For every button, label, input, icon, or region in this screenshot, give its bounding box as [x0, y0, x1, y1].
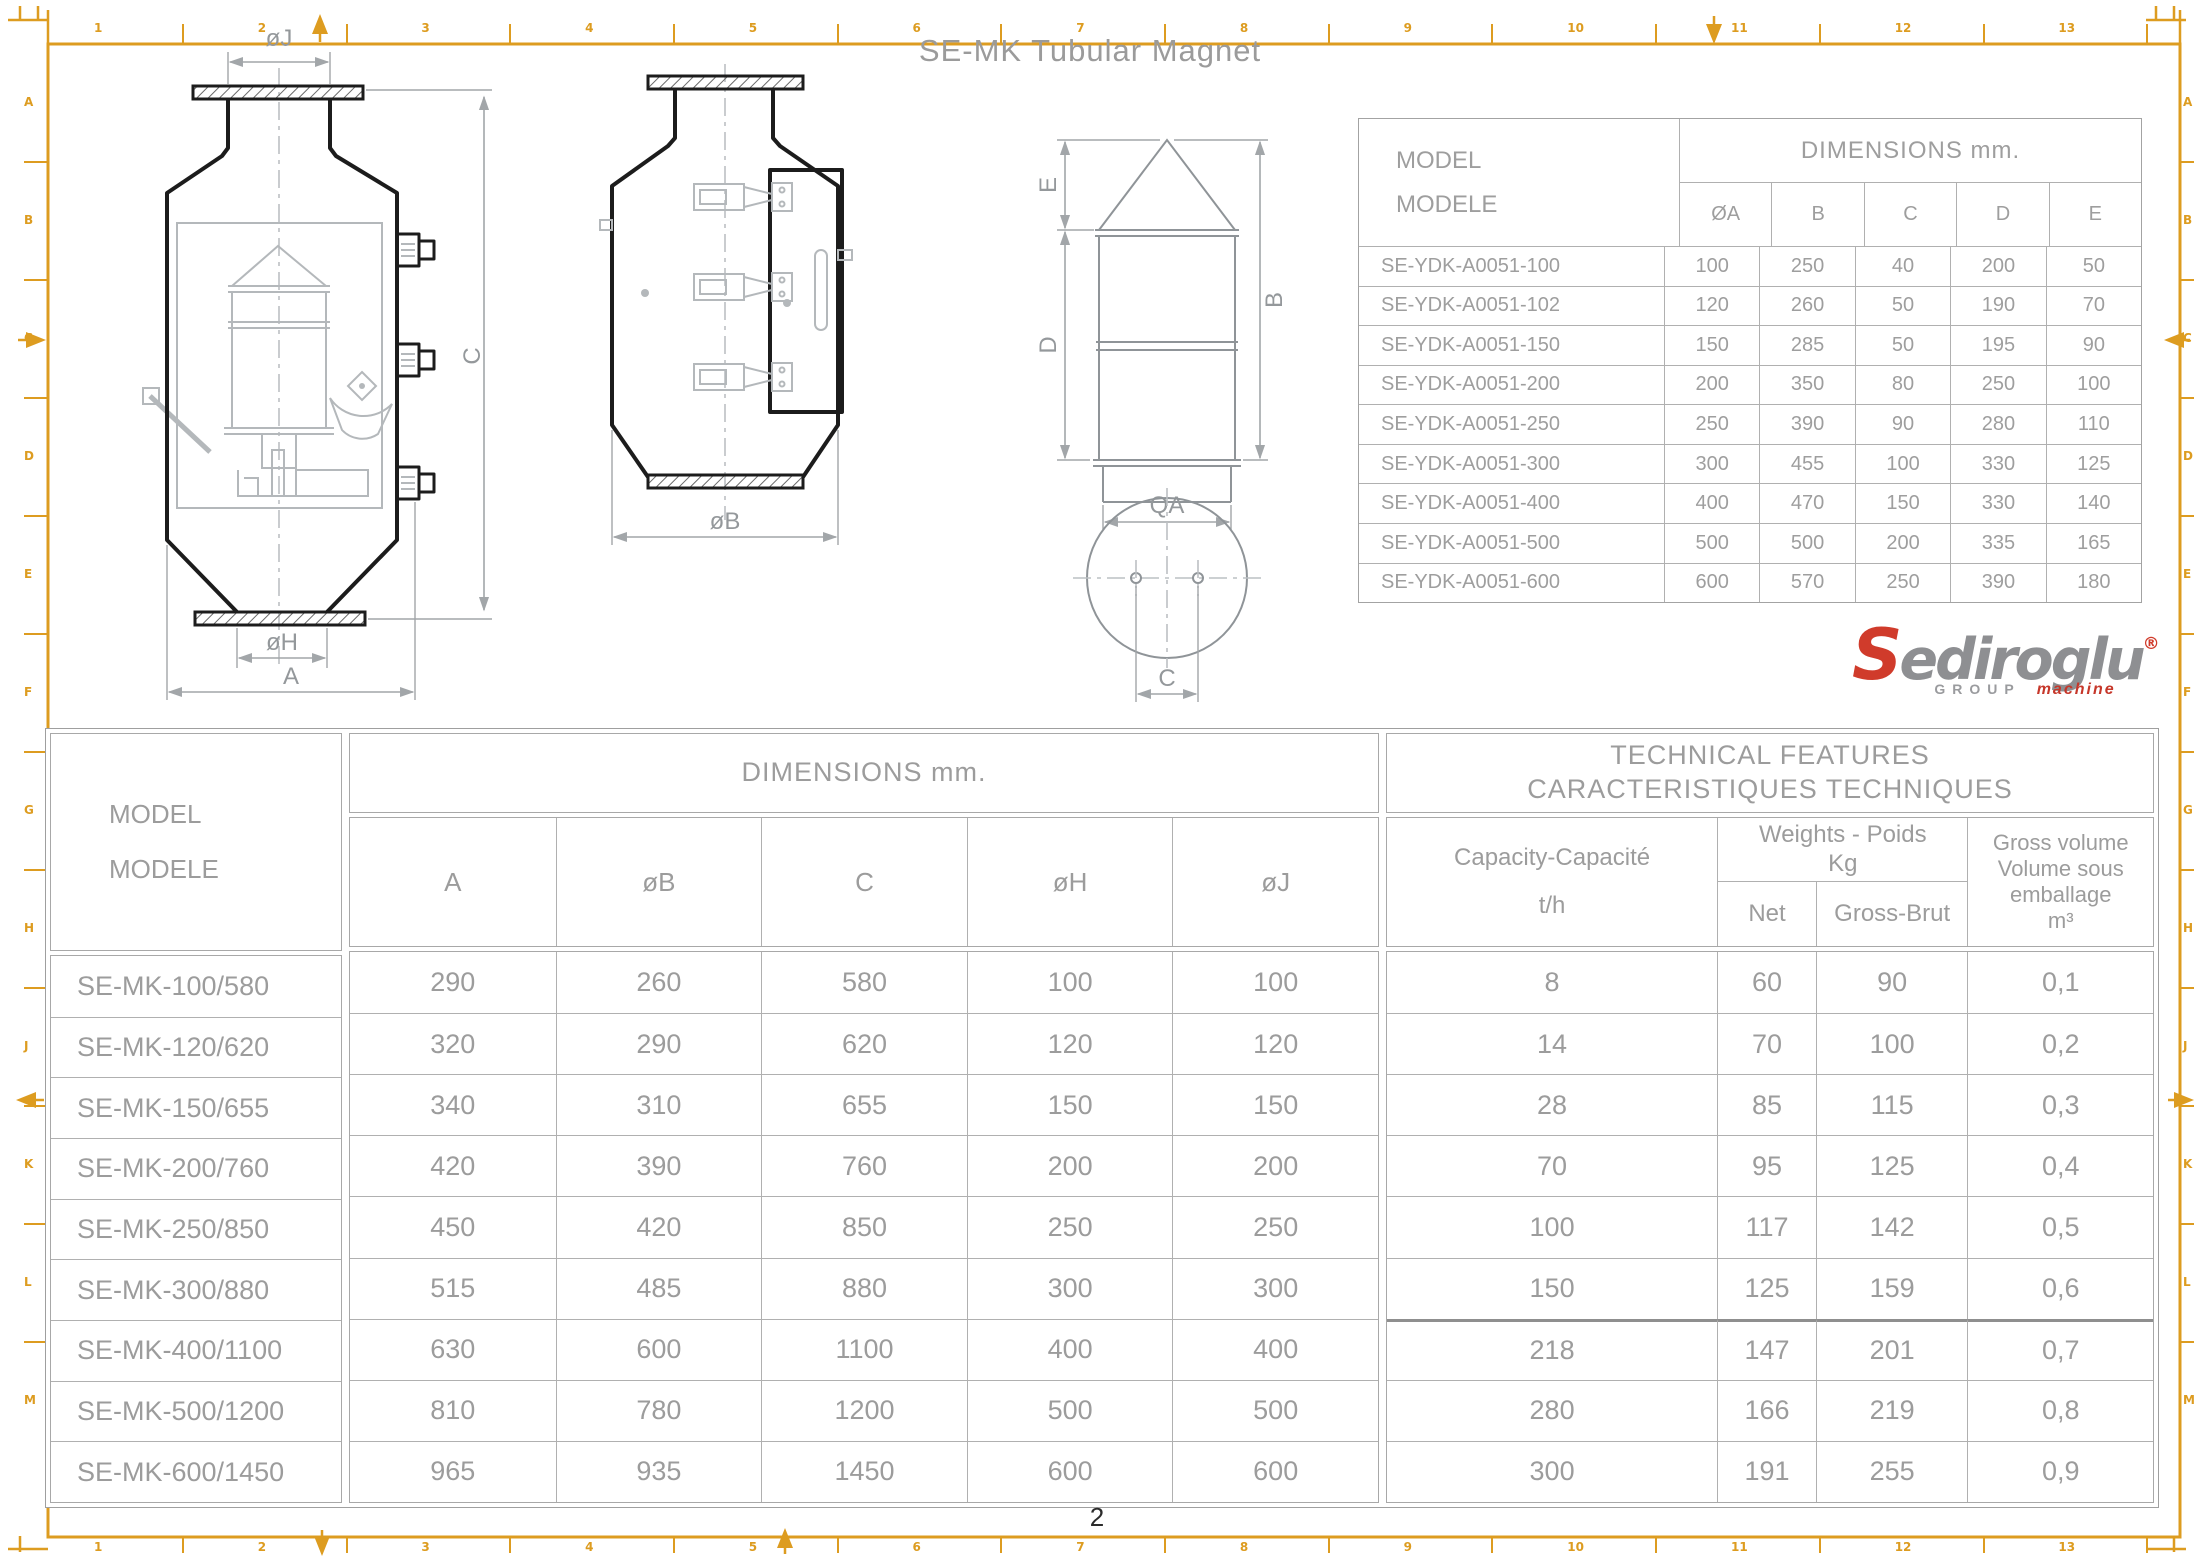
- value-cell: 250: [1665, 405, 1760, 444]
- value-cell: 70: [2047, 287, 2141, 326]
- model-cell: SE-YDK-A0051-200: [1359, 366, 1665, 405]
- value-cell: 600: [1665, 564, 1760, 603]
- tech-cell: 60: [1717, 952, 1816, 1013]
- model-cell: SE-MK-120/620: [51, 1017, 341, 1078]
- front-view: øJ C øH A: [143, 25, 492, 700]
- dimensions-header-group: DIMENSIONS mm. ØABCDE: [1680, 119, 2141, 246]
- table-header: MODEL MODELE DIMENSIONS mm. ØABCDE: [1359, 119, 2141, 246]
- tech-cell: 70: [1387, 1135, 1717, 1196]
- top-flange: [648, 76, 803, 89]
- tech-cells: 860900,114701000,228851150,370951250,410…: [1386, 951, 2154, 1503]
- dim-label-oh: øH: [266, 629, 298, 656]
- value-cell: 150: [1665, 326, 1760, 365]
- value-cell: 570: [1760, 564, 1855, 603]
- magnet-core-view: E D B QA: [1035, 140, 1288, 530]
- tech-cell: 115: [1816, 1074, 1968, 1135]
- dimension-cell: 600: [1172, 1441, 1378, 1502]
- value-cell: 250: [1951, 366, 2046, 405]
- value-cell: 100: [2047, 366, 2141, 405]
- dimension-cell: 120: [967, 1013, 1173, 1074]
- tech-cell: 125: [1717, 1258, 1816, 1319]
- table-row: SE-YDK-A0051-300300455100330125: [1359, 444, 2141, 484]
- tech-cell: 70: [1717, 1013, 1816, 1074]
- value-cell: 195: [1951, 326, 2046, 365]
- tech-cell: 85: [1717, 1074, 1816, 1135]
- tech-cell: 255: [1816, 1441, 1968, 1502]
- model-column: MODEL MODELE SE-MK-100/580SE-MK-120/620S…: [50, 733, 342, 1503]
- value-cell: 100: [1665, 247, 1760, 286]
- dimension-cell: 300: [967, 1258, 1173, 1319]
- tech-column-headers: Capacity-Capacité t/h Weights - Poids Kg…: [1386, 817, 2154, 947]
- dim-a: A: [167, 502, 415, 700]
- model-cells: SE-MK-100/580SE-MK-120/620SE-MK-150/655S…: [50, 955, 342, 1503]
- logo-machine-label: machine: [2037, 681, 2116, 699]
- dim-label-c: C: [459, 347, 486, 364]
- dimension-column-headers: AøBCøHøJ: [349, 817, 1379, 947]
- value-cell: 500: [1665, 524, 1760, 563]
- tech-cell: 8: [1387, 952, 1717, 1013]
- value-cell: 390: [1951, 564, 2046, 603]
- table-row: SE-YDK-A0051-1021202605019070: [1359, 286, 2141, 326]
- net-header: Net: [1717, 882, 1816, 946]
- dimension-cell: 150: [1172, 1074, 1378, 1135]
- tech-cell: 166: [1717, 1380, 1816, 1441]
- dimension-cell: 100: [1172, 952, 1378, 1013]
- dimension-cell: 515: [350, 1258, 556, 1319]
- model-cell: SE-YDK-A0051-100: [1359, 247, 1665, 286]
- value-cell: 120: [1665, 287, 1760, 326]
- toggle-clamps: [694, 183, 792, 391]
- dim-oh: øH: [237, 628, 327, 668]
- value-cell: 250: [1760, 247, 1855, 286]
- tech-cell: 219: [1816, 1380, 1968, 1441]
- dimension-cell: 500: [967, 1380, 1173, 1441]
- dimension-cell: 420: [556, 1196, 762, 1257]
- gross-header: Gross-Brut: [1816, 882, 1968, 946]
- tech-cell: 125: [1816, 1135, 1968, 1196]
- value-cell: 200: [1951, 247, 2046, 286]
- tech-cell: 0,5: [1967, 1196, 2153, 1257]
- dimension-cell: 935: [556, 1441, 762, 1502]
- table-row: SE-YDK-A0051-600600570250390180: [1359, 563, 2141, 603]
- tech-cell: 28: [1387, 1074, 1717, 1135]
- model-cell: SE-YDK-A0051-400: [1359, 484, 1665, 523]
- dimension-cell: 500: [1172, 1380, 1378, 1441]
- model-cell: SE-MK-250/850: [51, 1199, 341, 1260]
- dimension-cell: 850: [761, 1196, 967, 1257]
- value-cell: 110: [2047, 405, 2141, 444]
- dimension-cell: 150: [967, 1074, 1173, 1135]
- model-cell: SE-MK-150/655: [51, 1077, 341, 1138]
- tech-cell: 0,2: [1967, 1013, 2153, 1074]
- value-cell: 400: [1665, 484, 1760, 523]
- value-cell: 280: [1951, 405, 2046, 444]
- value-cell: 180: [2047, 564, 2141, 603]
- table-row: SE-YDK-A0051-500500500200335165: [1359, 523, 2141, 563]
- dimension-cell: 400: [967, 1319, 1173, 1380]
- dim-label-d: D: [1035, 336, 1062, 353]
- table-row: SE-YDK-A0051-1501502855019590: [1359, 325, 2141, 365]
- column-header: ØA: [1680, 183, 1772, 246]
- model-cell: SE-YDK-A0051-600: [1359, 564, 1665, 603]
- dimension-cell: 1450: [761, 1441, 967, 1502]
- value-cell: 50: [2047, 247, 2141, 286]
- value-cell: 165: [2047, 524, 2141, 563]
- value-cell: 250: [1856, 564, 1951, 603]
- tech-cell: 0,7: [1967, 1319, 2153, 1380]
- tech-cell: 147: [1717, 1319, 1816, 1380]
- tech-cell: 14: [1387, 1013, 1717, 1074]
- value-cell: 200: [1665, 366, 1760, 405]
- value-cell: 200: [1856, 524, 1951, 563]
- dimension-cell: 120: [1172, 1013, 1378, 1074]
- dimension-cell: 260: [556, 952, 762, 1013]
- dimension-cell: 310: [556, 1074, 762, 1135]
- value-cell: 150: [1856, 484, 1951, 523]
- dimension-cell: 485: [556, 1258, 762, 1319]
- model-cell: SE-YDK-A0051-102: [1359, 287, 1665, 326]
- tech-cell: 0,9: [1967, 1441, 2153, 1502]
- dimension-cell: 250: [1172, 1196, 1378, 1257]
- value-cell: 500: [1760, 524, 1855, 563]
- capacity-header: Capacity-Capacité t/h: [1387, 818, 1717, 946]
- dim-label-b: B: [1261, 292, 1288, 308]
- dimension-cells: 2902605801001003202906201201203403106551…: [349, 951, 1379, 1503]
- tech-cell: 142: [1816, 1196, 1968, 1257]
- column-header: C: [761, 818, 967, 946]
- model-cell: SE-MK-600/1450: [51, 1441, 341, 1502]
- value-cell: 140: [2047, 484, 2141, 523]
- column-header: øJ: [1172, 818, 1378, 946]
- value-cell: 260: [1760, 287, 1855, 326]
- dimension-cell: 390: [556, 1135, 762, 1196]
- table-row: SE-YDK-A0051-20020035080250100: [1359, 365, 2141, 405]
- tech-cell: 90: [1816, 952, 1968, 1013]
- model-cell: SE-YDK-A0051-150: [1359, 326, 1665, 365]
- value-cell: 80: [1856, 366, 1951, 405]
- value-cell: 455: [1760, 445, 1855, 484]
- dimension-cell: 340: [350, 1074, 556, 1135]
- dimension-cell: 100: [967, 952, 1173, 1013]
- value-cell: 100: [1856, 445, 1951, 484]
- value-cell: 285: [1760, 326, 1855, 365]
- dimension-cell: 250: [967, 1196, 1173, 1257]
- model-cell: SE-MK-400/1100: [51, 1320, 341, 1381]
- dimensions-header: DIMENSIONS mm.: [1680, 119, 2141, 183]
- model-cell: SE-YDK-A0051-250: [1359, 405, 1665, 444]
- dim-label-c2: C: [1158, 665, 1175, 692]
- inner-magnet-assembly: [224, 246, 392, 496]
- column-header: D: [1957, 183, 2049, 246]
- dim-label-a: A: [283, 663, 299, 690]
- column-headers: ØABCDE: [1680, 183, 2141, 246]
- side-view: øB: [600, 64, 852, 545]
- value-cell: 50: [1856, 287, 1951, 326]
- tech-cell: 159: [1816, 1258, 1968, 1319]
- dimension-cell: 810: [350, 1380, 556, 1441]
- value-cell: 330: [1951, 484, 2046, 523]
- side-nozzles: [397, 234, 434, 499]
- tech-cell: 0,6: [1967, 1258, 2153, 1319]
- dimensions-header: DIMENSIONS mm.: [349, 733, 1379, 813]
- dimension-cell: 965: [350, 1441, 556, 1502]
- logo-s-glyph: S: [1852, 614, 1899, 696]
- dimension-cell: 320: [350, 1013, 556, 1074]
- dim-label-e: E: [1035, 177, 1062, 193]
- table-row: SE-YDK-A0051-25025039090280110: [1359, 404, 2141, 444]
- tech-cell: 201: [1816, 1319, 1968, 1380]
- registered-mark-icon: ®: [2143, 634, 2160, 654]
- model-header-cell: MODEL MODELE: [1359, 119, 1680, 246]
- tech-cell: 300: [1387, 1441, 1717, 1502]
- dimension-cell: 780: [556, 1380, 762, 1441]
- tech-cell: 100: [1387, 1196, 1717, 1257]
- dimension-cell: 655: [761, 1074, 967, 1135]
- yd-dimensions-table: MODEL MODELE DIMENSIONS mm. ØABCDE SE-YD…: [1358, 118, 2142, 603]
- dimension-cell: 1200: [761, 1380, 967, 1441]
- dimension-cell: 420: [350, 1135, 556, 1196]
- dimension-cell: 620: [761, 1013, 967, 1074]
- tech-cell: 0,1: [1967, 952, 2153, 1013]
- tech-cell: 0,8: [1967, 1380, 2153, 1441]
- table-body: SE-YDK-A0051-1001002504020050SE-YDK-A005…: [1359, 246, 2141, 602]
- dimension-cell: 400: [1172, 1319, 1378, 1380]
- model-cell: SE-YDK-A0051-300: [1359, 445, 1665, 484]
- volume-header: Gross volume Volume sous emballage m³: [1967, 818, 2153, 946]
- tech-cell: 95: [1717, 1135, 1816, 1196]
- tech-cell: 218: [1387, 1319, 1717, 1380]
- brand-logo: Sediroglu® GROUP machine: [1852, 622, 2152, 699]
- dimension-cell: 300: [1172, 1258, 1378, 1319]
- dimensions-section: DIMENSIONS mm. AøBCøHøJ 2902605801001003…: [349, 733, 1379, 1503]
- logo-group-label: GROUP: [1934, 681, 2020, 697]
- value-cell: 90: [2047, 326, 2141, 365]
- dim-c: C: [366, 90, 492, 619]
- table-row: SE-YDK-A0051-400400470150330140: [1359, 483, 2141, 523]
- technical-features-section: TECHNICAL FEATURES CARACTERISTIQUES TECH…: [1386, 733, 2154, 1503]
- dimension-cell: 200: [1172, 1135, 1378, 1196]
- dim-e: E: [1035, 140, 1160, 230]
- column-header: E: [2050, 183, 2141, 246]
- top-flange: [193, 86, 363, 99]
- value-cell: 330: [1951, 445, 2046, 484]
- dim-label-ob: øB: [710, 508, 741, 535]
- model-label: MODEL: [109, 799, 341, 830]
- dimension-cell: 200: [967, 1135, 1173, 1196]
- column-header: øB: [556, 818, 762, 946]
- modele-label: MODELE: [1396, 191, 1679, 219]
- dimension-cell: 1100: [761, 1319, 967, 1380]
- value-cell: 350: [1760, 366, 1855, 405]
- value-cell: 390: [1760, 405, 1855, 444]
- value-cell: 40: [1856, 247, 1951, 286]
- dimension-cell: 600: [967, 1441, 1173, 1502]
- table-row: SE-YDK-A0051-1001002504020050: [1359, 246, 2141, 286]
- dim-label-oj: øJ: [266, 25, 293, 52]
- column-header: øH: [967, 818, 1173, 946]
- model-cell: SE-MK-300/880: [51, 1259, 341, 1320]
- product-table: MODEL MODELE SE-MK-100/580SE-MK-120/620S…: [45, 728, 2159, 1508]
- column-header: B: [1772, 183, 1864, 246]
- door-handle: [815, 250, 827, 330]
- weights-header: Weights - Poids Kg: [1717, 818, 1967, 882]
- tech-cell: 150: [1387, 1258, 1717, 1319]
- dimension-cell: 630: [350, 1319, 556, 1380]
- tech-cell: 117: [1717, 1196, 1816, 1257]
- value-cell: 470: [1760, 484, 1855, 523]
- tech-cell: 100: [1816, 1013, 1968, 1074]
- model-cell: SE-YDK-A0051-500: [1359, 524, 1665, 563]
- page-number: 2: [1075, 1502, 1119, 1533]
- bottom-flange: [195, 612, 365, 625]
- dimension-cell: 600: [556, 1319, 762, 1380]
- value-cell: 335: [1951, 524, 2046, 563]
- dimension-cell: 290: [556, 1013, 762, 1074]
- outlet-circle-view: C: [1073, 488, 1261, 702]
- model-cell: SE-MK-100/580: [51, 956, 341, 1017]
- dim-d: D: [1035, 232, 1090, 460]
- tech-cell: 0,3: [1967, 1074, 2153, 1135]
- dimension-cell: 760: [761, 1135, 967, 1196]
- dim-b: B: [1174, 140, 1288, 460]
- dimension-cell: 880: [761, 1258, 967, 1319]
- dimension-cell: 450: [350, 1196, 556, 1257]
- model-header-cell: MODEL MODELE: [50, 733, 342, 951]
- value-cell: 300: [1665, 445, 1760, 484]
- value-cell: 125: [2047, 445, 2141, 484]
- tech-cell: 280: [1387, 1380, 1717, 1441]
- column-header: A: [350, 818, 556, 946]
- modele-label: MODELE: [109, 854, 341, 885]
- column-header: C: [1865, 183, 1957, 246]
- value-cell: 190: [1951, 287, 2046, 326]
- logo-wordmark: Sediroglu®: [1852, 622, 2152, 689]
- value-cell: 50: [1856, 326, 1951, 365]
- bottom-flange: [648, 475, 803, 488]
- dimension-cell: 290: [350, 952, 556, 1013]
- model-cell: SE-MK-200/760: [51, 1138, 341, 1199]
- model-cell: SE-MK-500/1200: [51, 1381, 341, 1442]
- tech-cell: 191: [1717, 1441, 1816, 1502]
- model-label: MODEL: [1396, 147, 1679, 175]
- value-cell: 90: [1856, 405, 1951, 444]
- dimension-cell: 580: [761, 952, 967, 1013]
- technical-features-header: TECHNICAL FEATURES CARACTERISTIQUES TECH…: [1386, 733, 2154, 813]
- tech-cell: 0,4: [1967, 1135, 2153, 1196]
